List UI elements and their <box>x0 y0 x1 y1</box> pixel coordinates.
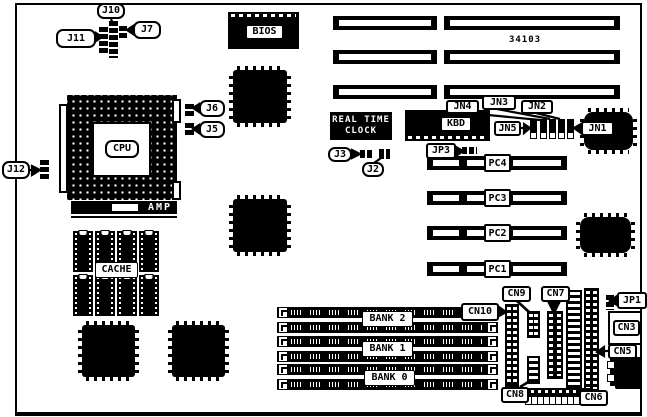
pc-slot-pc1: PC1 <box>427 262 567 276</box>
callout-cn9: CN9 <box>502 286 531 302</box>
jumper-j3 <box>360 150 373 158</box>
callout-j6: J6 <box>199 100 225 117</box>
callout-jn2: JN2 <box>521 100 553 114</box>
pc-slot-pc3: PC3 <box>427 191 567 205</box>
part-number: 34103 <box>498 35 552 45</box>
isa-slot-segment <box>333 50 437 64</box>
jumper-j5 <box>185 123 194 137</box>
callout-j5: J5 <box>199 121 225 138</box>
jumper-j6 <box>185 104 194 117</box>
isa-slot-segment <box>333 85 437 99</box>
callout-j2: J2 <box>362 162 384 177</box>
callout-j10: J10 <box>97 3 125 19</box>
header-cn10 <box>505 304 519 388</box>
callout-cn7: CN7 <box>541 286 570 302</box>
jumper-j12 <box>40 160 49 180</box>
rtc-label-line2: CLOCK <box>345 126 377 137</box>
jumper-jn4-pins <box>540 119 547 132</box>
bank-label: BANK 0 <box>364 370 415 386</box>
power-connector <box>607 356 642 389</box>
cache-chip <box>73 231 93 272</box>
jumper-jn2-pins <box>558 119 565 132</box>
pc-slot-label: PC4 <box>484 154 511 172</box>
qfp-chip <box>233 199 287 252</box>
callout-jn4: JN4 <box>446 100 479 114</box>
callout-cn5: CN5 <box>608 344 637 359</box>
socket-tab-top <box>172 99 181 123</box>
jumper-j7-block <box>119 26 127 39</box>
amp-key-slot <box>112 204 138 211</box>
qfp-chip <box>82 325 135 377</box>
bank-label: BANK 1 <box>362 341 413 357</box>
rtc-chip: REAL TIME CLOCK <box>330 112 392 140</box>
callout-jn5: JN5 <box>494 121 521 136</box>
callout-cn6: CN6 <box>579 390 608 406</box>
callout-j7: J7 <box>133 21 161 39</box>
header-cn5 <box>584 288 599 392</box>
pc-slot-label: PC1 <box>484 260 511 278</box>
kbd-label: KBD <box>441 117 471 131</box>
cache-chip <box>117 275 137 316</box>
isa-slot-segment <box>333 16 437 30</box>
motherboard-diagram: { "figure": { "type": "motherboard-jumpe… <box>0 0 647 417</box>
callout-jn3: JN3 <box>482 95 516 110</box>
isa-slot-segment <box>444 50 620 64</box>
bios-label: BIOS <box>246 25 283 39</box>
cache-chip <box>73 275 93 316</box>
vertical-connector <box>566 290 582 394</box>
callout-cn3: CN3 <box>613 320 640 336</box>
callout-jp3: JP3 <box>426 143 456 159</box>
pc-slot-label: PC3 <box>484 189 511 207</box>
header-cn7 <box>547 311 563 379</box>
amp-bar-underline <box>71 216 177 218</box>
callout-j11: J11 <box>56 29 96 48</box>
jumper-jn5-pins <box>530 119 537 132</box>
plcc-chip <box>580 217 631 253</box>
header-cn8 <box>527 356 540 384</box>
socket-tab-bottom <box>172 181 181 200</box>
amp-brand-text: AMP <box>148 202 172 213</box>
cache-chip <box>139 231 159 272</box>
jumper-jn3-pins <box>549 119 556 132</box>
isa-slot-segment <box>444 16 620 30</box>
header-cn9 <box>527 311 540 338</box>
cache-chip <box>139 275 159 316</box>
bank-label: BANK 2 <box>362 311 413 327</box>
isa-slot-segment <box>444 85 620 99</box>
pc-slot-label: PC2 <box>484 224 511 242</box>
jumper-j2 <box>379 149 390 159</box>
callout-jn1: JN1 <box>581 121 614 136</box>
socket-lever <box>59 104 68 193</box>
amp-socket-bar: AMP <box>71 201 177 214</box>
cpu-label: CPU <box>105 140 139 158</box>
cache-chip <box>95 275 115 316</box>
pc-slot-pc2: PC2 <box>427 226 567 240</box>
callout-j12: J12 <box>2 161 30 179</box>
jumper-j10-block <box>109 21 118 58</box>
cache-label: CACHE <box>95 262 138 278</box>
jumper-jp1 <box>606 295 614 310</box>
jumper-j11-block <box>99 27 108 53</box>
callout-cn10: CN10 <box>461 303 499 321</box>
callout-j3: J3 <box>328 147 352 162</box>
callout-jp1: JP1 <box>617 292 647 309</box>
qfp-chip <box>233 70 287 123</box>
callout-cn8: CN8 <box>501 387 529 403</box>
qfp-chip <box>172 325 225 377</box>
jumper-jp3 <box>462 147 477 154</box>
rtc-label-line1: REAL TIME <box>332 115 390 126</box>
jumper-jn1-pins <box>567 119 574 132</box>
